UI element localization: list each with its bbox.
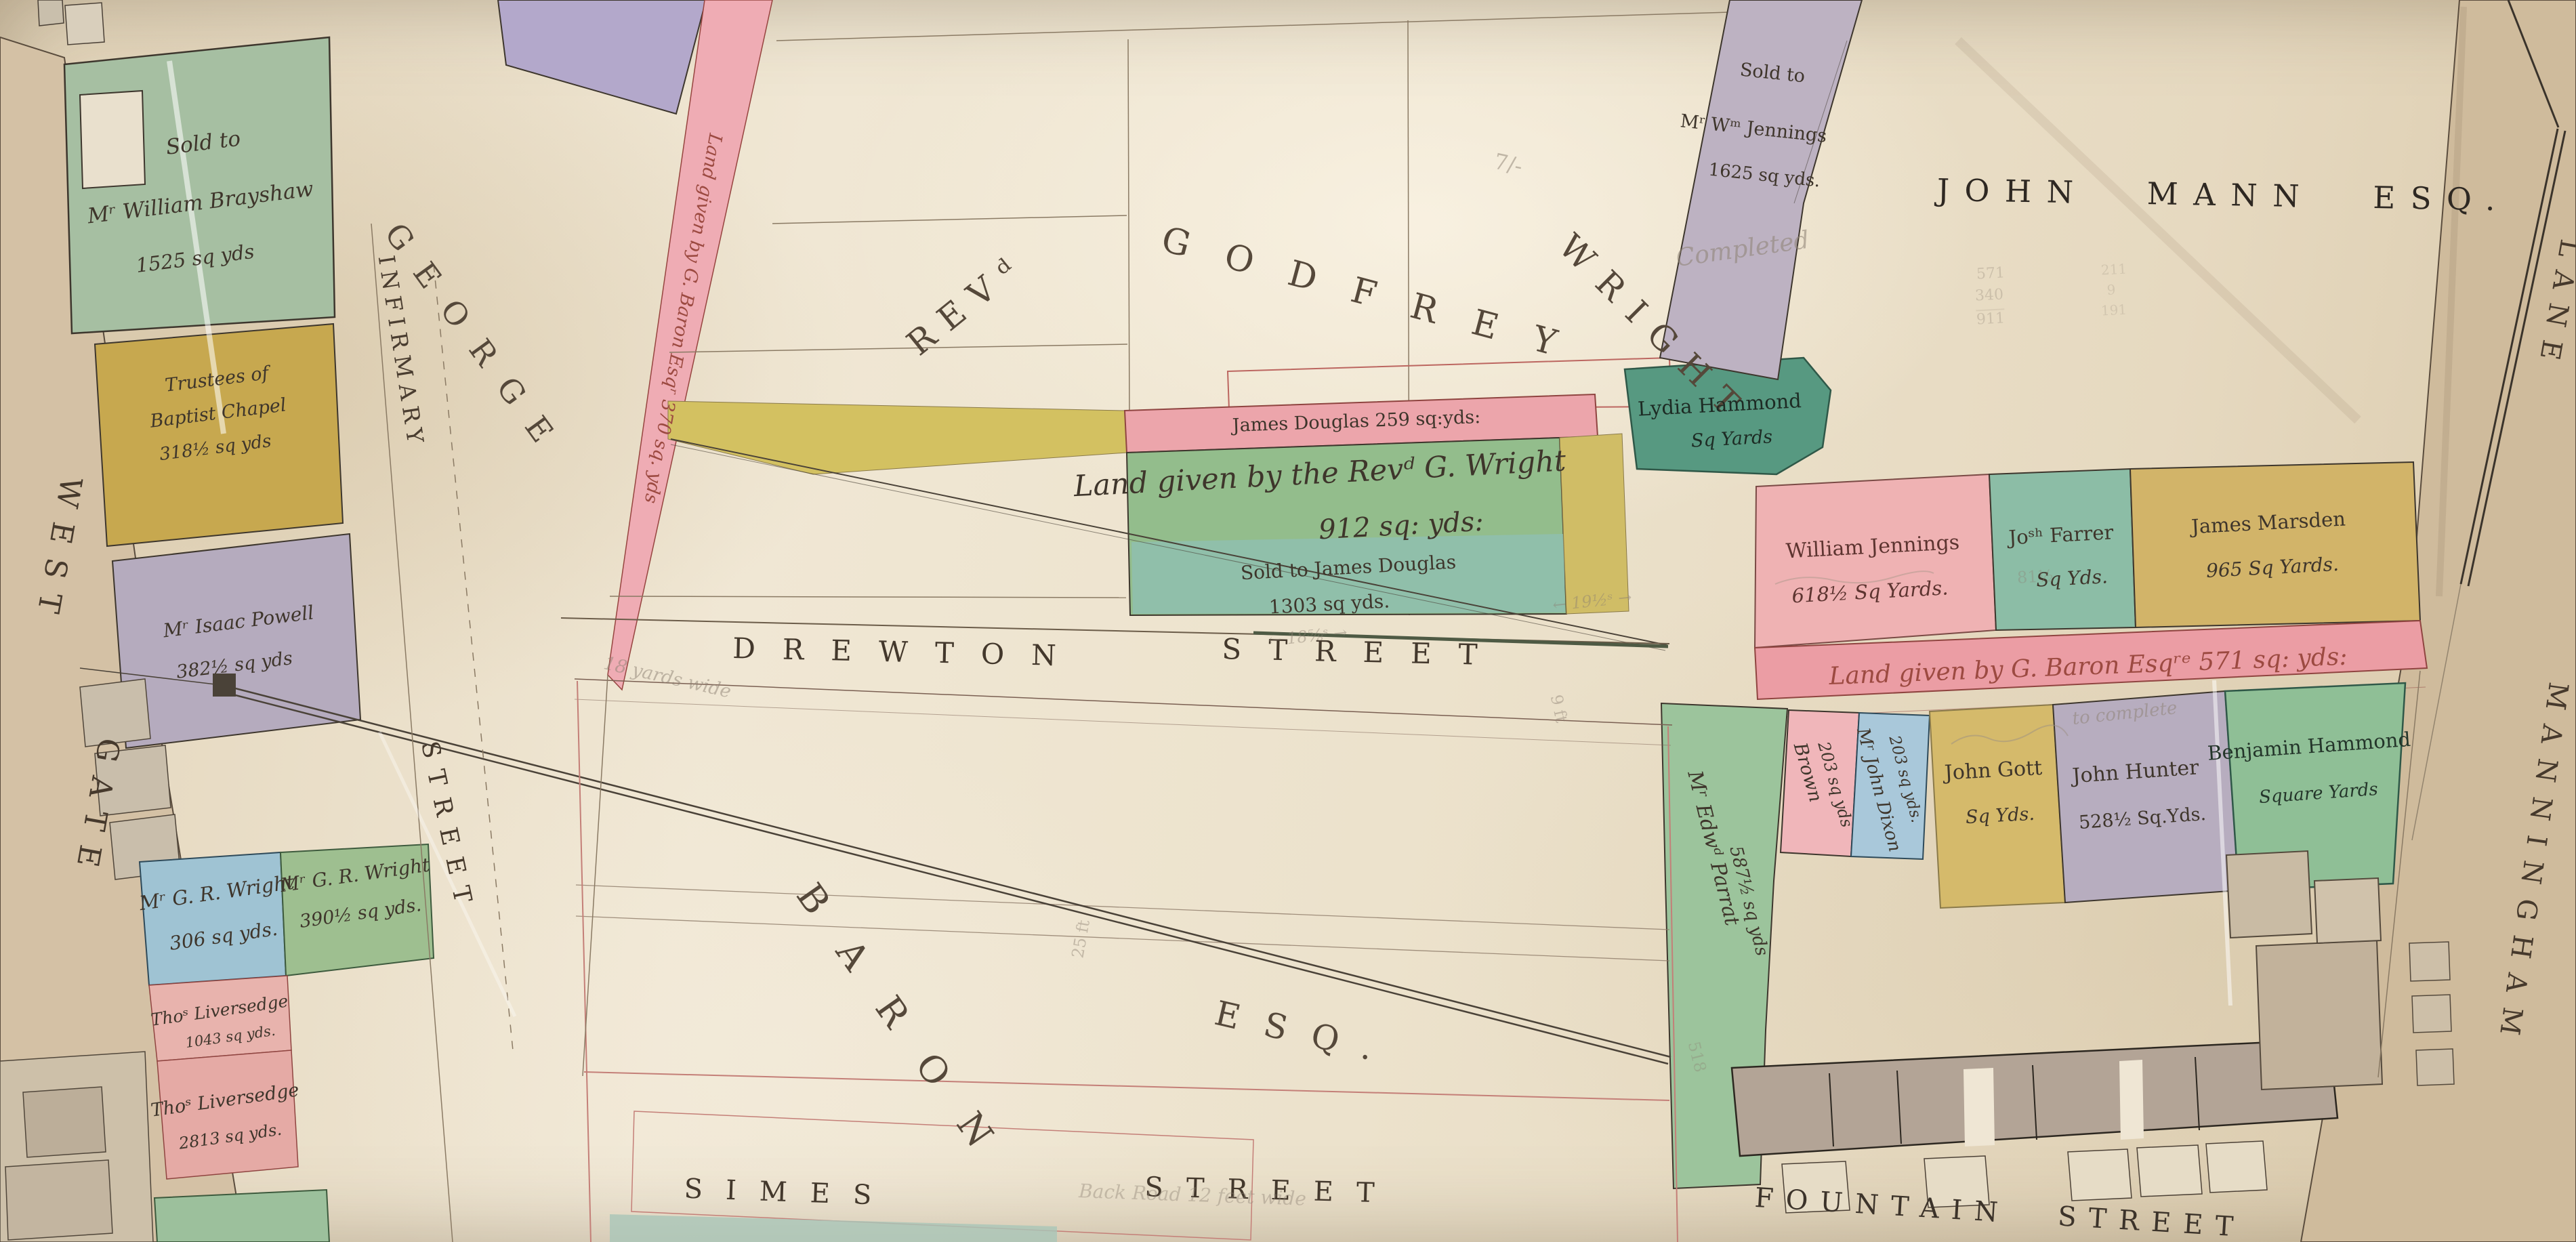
drewton-south-edge xyxy=(575,679,1672,725)
pencil-sum1-line2: 340 xyxy=(1974,286,2003,304)
corner-block-building-1 xyxy=(23,1087,106,1157)
plot-label-gott-2: Sq Yds. xyxy=(1965,804,2035,828)
fountain-band-gap-2 xyxy=(2119,1060,2144,1140)
pencil-sum1-line3: 911 xyxy=(1976,308,2005,328)
yellow-wedge-east xyxy=(1560,434,1629,614)
plot-label-lydia-2: Sq Yards xyxy=(1690,426,1773,451)
crease-4 xyxy=(1958,41,2358,420)
fountain-band-gap-1 xyxy=(1964,1068,1995,1146)
westgate-building-1 xyxy=(80,679,150,747)
simes-teal-wash xyxy=(610,1214,1057,1242)
east-building-3 xyxy=(2314,878,2381,943)
plot-purple-top xyxy=(498,0,706,114)
pencil-sum1-line1: 571 xyxy=(1976,264,2005,283)
block-west-line xyxy=(577,681,591,1242)
pencil-sum2-line2: 9 xyxy=(2106,282,2116,298)
plot-baptist-chapel xyxy=(95,324,343,546)
east-building-1 xyxy=(2226,851,2312,938)
corner-building-1 xyxy=(65,3,104,45)
simes-north-line xyxy=(584,1072,1669,1100)
corner-block-building-2 xyxy=(5,1160,112,1240)
lane-building-2 xyxy=(2412,995,2451,1033)
lane-building-1 xyxy=(2409,942,2450,981)
estate-map: WEST GATE INFIRMARY GEORGE STREET DREWTO… xyxy=(0,0,2576,1242)
corner-green-plot xyxy=(154,1190,329,1242)
plot-jennings-sold xyxy=(1660,0,1862,379)
plot-farrer xyxy=(1989,469,2136,630)
plot-marsden xyxy=(2130,462,2420,627)
plot-powell xyxy=(112,534,360,748)
pencil-81half: 81½ xyxy=(2016,567,2054,587)
boundary-step-3 xyxy=(610,596,1126,598)
pencil-sum2-line1: 211 xyxy=(2100,262,2127,278)
baron-gift-west-strip xyxy=(608,0,772,690)
fountain-frontage-2 xyxy=(2137,1145,2202,1197)
brayshaw-building xyxy=(80,91,145,188)
george-east-edge xyxy=(583,675,608,1076)
east-building-2 xyxy=(2256,940,2382,1090)
corner-building-2 xyxy=(38,0,64,26)
yellow-wedge-west xyxy=(668,401,1127,474)
boundary-line xyxy=(776,12,1729,41)
fountain-frontage-3 xyxy=(2206,1141,2267,1193)
drewton-south-edge-2 xyxy=(575,699,1671,745)
boundary-step-2 xyxy=(669,344,1127,352)
pencil-sum2-line3: 191 xyxy=(2100,302,2127,319)
street-drewton-word2: STREET xyxy=(1222,633,1505,672)
fountain-frontage-1 xyxy=(2068,1149,2132,1201)
lane-building-3 xyxy=(2416,1049,2454,1085)
boundary-step-1 xyxy=(772,215,1127,224)
